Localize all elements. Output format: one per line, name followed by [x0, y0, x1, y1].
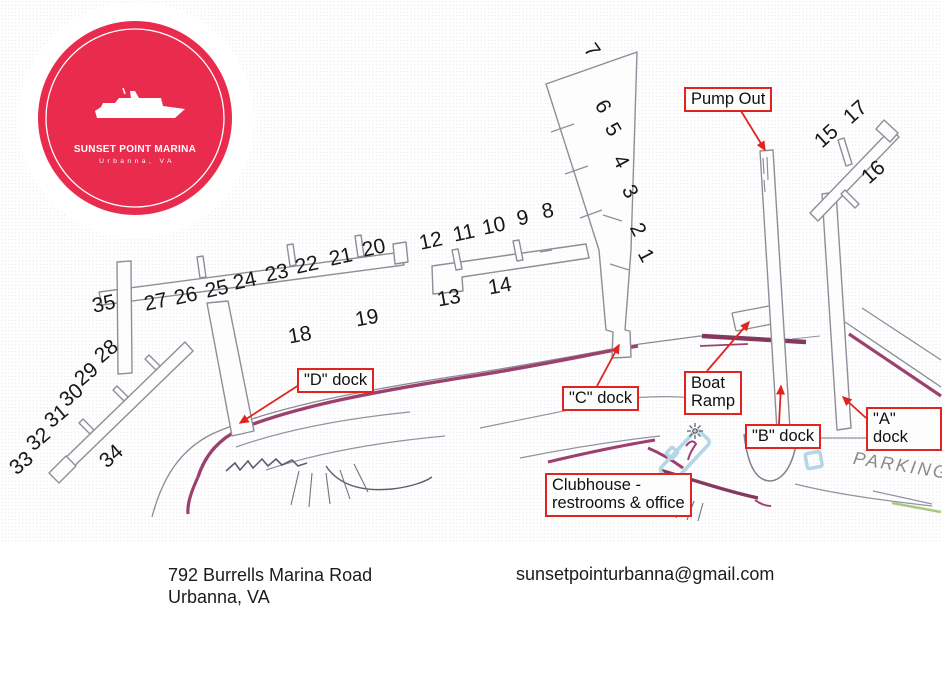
slip-number-14: 14: [486, 273, 513, 300]
slip-number-25: 25: [203, 275, 231, 302]
logo-subtitle: Urbanna, VA: [99, 158, 175, 165]
slip-number-27: 27: [142, 288, 170, 315]
slip-number-7: 7: [579, 39, 605, 62]
logo-title: SUNSET POINT MARINA: [74, 144, 196, 155]
slip-number-34: 34: [95, 440, 128, 473]
slip-number-11: 11: [451, 220, 477, 247]
dock-c-pier: [546, 52, 637, 358]
slip-number-23: 23: [263, 259, 291, 286]
label-b-dock: "B" dock: [745, 424, 821, 449]
label-a-dock: "A" dock: [866, 407, 942, 451]
label-d-dock: "D" dock: [297, 368, 374, 393]
label-pump-out: Pump Out: [684, 87, 772, 112]
label-c-dock: "C" dock: [562, 386, 639, 411]
slip-number-22: 22: [293, 251, 321, 278]
boat-ramp-lines: [732, 306, 772, 331]
leader-arrow-pump-out: [741, 111, 765, 150]
slip-number-26: 26: [172, 282, 200, 309]
slip-number-18: 18: [286, 322, 313, 349]
footer-email: sunsetpointurbanna@gmail.com: [516, 564, 774, 585]
slip-number-21: 21: [327, 243, 355, 270]
address-line2: Urbanna, VA: [168, 586, 372, 608]
slip-number-1: 1: [633, 245, 659, 266]
slip-number-10: 10: [480, 212, 508, 239]
stage: 1234567891011121314151617181920212223242…: [0, 0, 942, 692]
slip-number-15: 15: [810, 120, 843, 153]
small-building: [805, 451, 822, 468]
slip-number-8: 8: [540, 199, 556, 224]
dock-d-pier: [207, 301, 254, 436]
slip-number-9: 9: [515, 206, 531, 231]
slip-number-13: 13: [435, 285, 462, 312]
dock-a-pier: [822, 192, 851, 430]
dock-d-35-stub: [117, 261, 132, 374]
label-clubhouse: Clubhouse - restrooms & office: [545, 473, 692, 517]
footer-address: 792 Burrells Marina Road Urbanna, VA: [168, 564, 372, 608]
slip-number-12: 12: [417, 227, 445, 254]
slip-number-20: 20: [360, 234, 388, 261]
leader-arrow-boat-ramp: [707, 322, 749, 371]
slip-number-19: 19: [353, 305, 380, 332]
slip-number-17: 17: [839, 96, 872, 129]
label-boat-ramp: Boat Ramp: [684, 371, 742, 415]
address-line1: 792 Burrells Marina Road: [168, 564, 372, 586]
slip-number-35: 35: [90, 290, 118, 317]
marina-logo: SUNSET POINT MARINA Urbanna, VA: [36, 19, 234, 222]
